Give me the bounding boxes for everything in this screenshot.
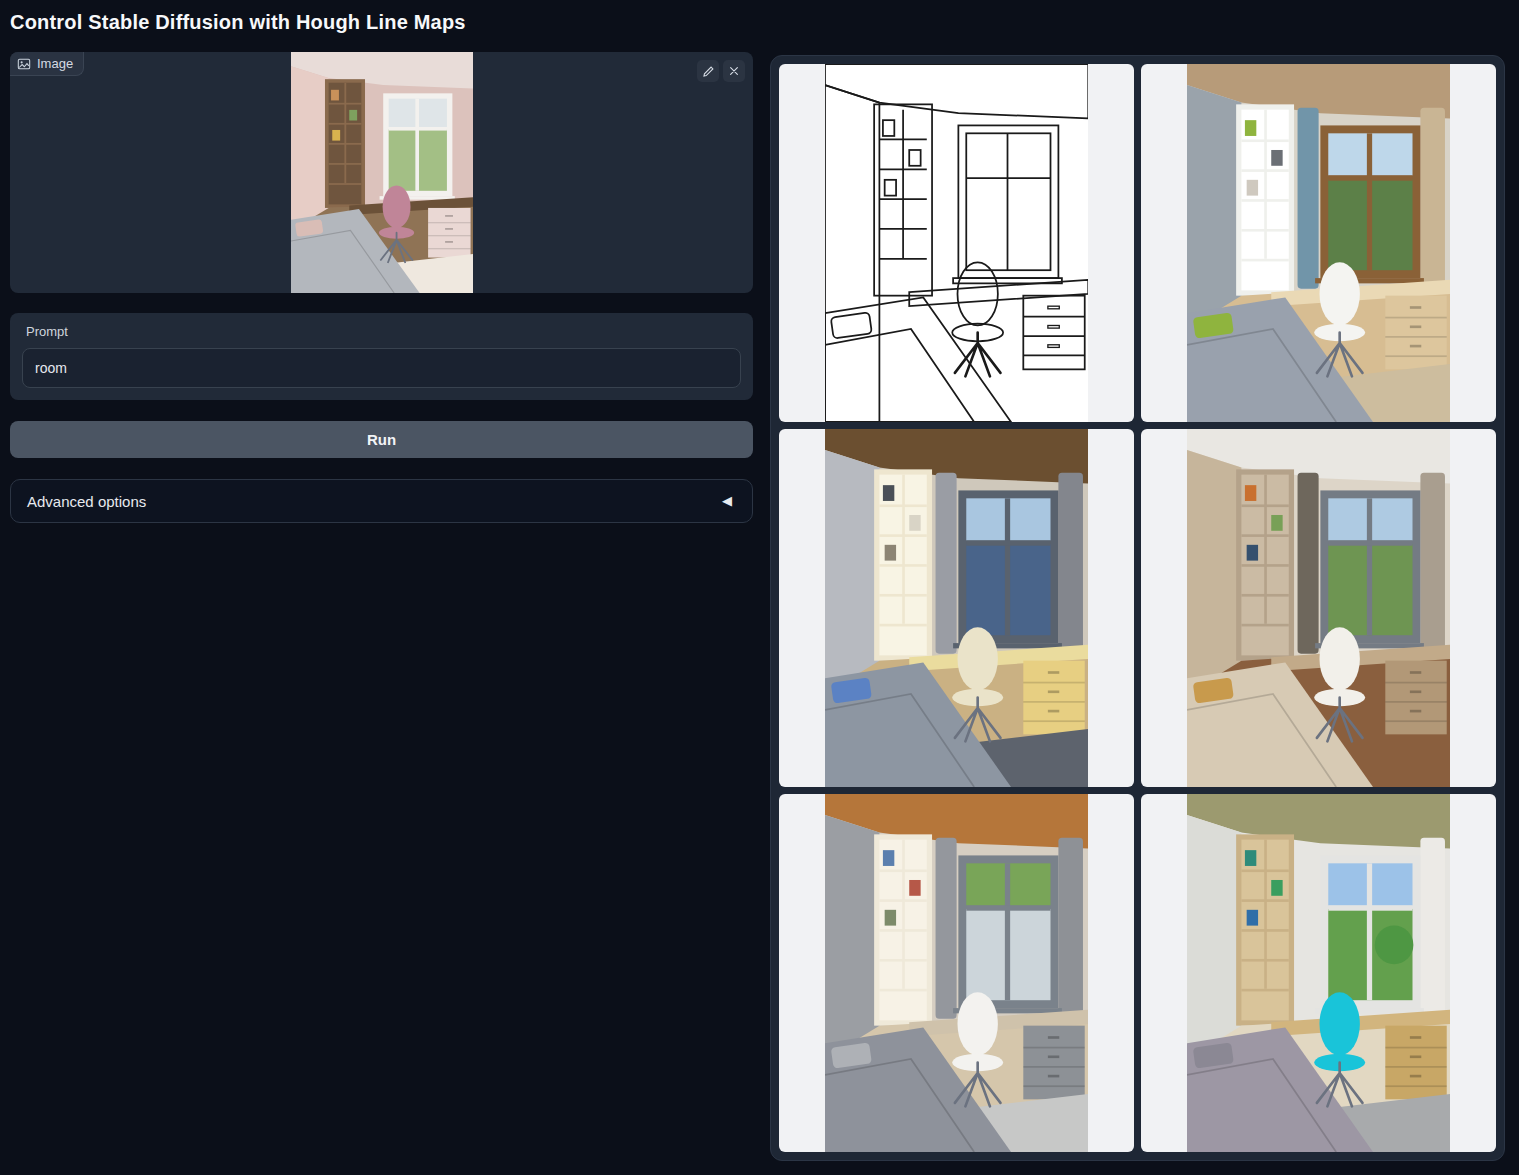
gallery-item-hough-line-map[interactable] — [779, 64, 1134, 422]
advanced-options-label: Advanced options — [27, 493, 146, 510]
input-image-panel: Image — [10, 52, 753, 293]
edit-image-button[interactable] — [697, 60, 719, 82]
image-toolbar — [697, 60, 745, 82]
image-icon — [17, 57, 31, 71]
controls-column: Image — [10, 52, 753, 523]
close-icon — [728, 65, 740, 77]
input-image[interactable] — [291, 52, 473, 293]
run-button[interactable]: Run — [10, 421, 753, 458]
generated-room-2 — [825, 429, 1088, 787]
hough-line-map — [825, 64, 1088, 422]
advanced-options-accordion[interactable]: Advanced options ◀ — [10, 479, 753, 523]
gallery-item-generated-room-5[interactable] — [1141, 794, 1496, 1152]
page-title: Control Stable Diffusion with Hough Line… — [10, 10, 1505, 34]
image-component-label-text: Image — [37, 56, 73, 71]
gallery-item-generated-room-3[interactable] — [1141, 429, 1496, 787]
gallery-item-generated-room-1[interactable] — [1141, 64, 1496, 422]
pencil-icon — [702, 65, 715, 78]
prompt-input[interactable] — [22, 348, 741, 388]
prompt-panel: Prompt — [10, 313, 753, 400]
output-gallery — [770, 55, 1505, 1161]
generated-room-1 — [1187, 64, 1450, 422]
clear-image-button[interactable] — [723, 60, 745, 82]
gallery-item-generated-room-2[interactable] — [779, 429, 1134, 787]
generated-room-3 — [1187, 429, 1450, 787]
generated-room-4 — [825, 794, 1088, 1152]
accordion-collapse-icon: ◀ — [722, 493, 732, 508]
generated-room-5 — [1187, 794, 1450, 1152]
main-columns: Image — [10, 52, 1505, 1161]
image-component-label: Image — [10, 52, 84, 76]
input-image-wrap — [10, 52, 753, 293]
gallery-item-generated-room-4[interactable] — [779, 794, 1134, 1152]
prompt-label: Prompt — [26, 324, 741, 339]
app-root: Control Stable Diffusion with Hough Line… — [0, 0, 1519, 1171]
